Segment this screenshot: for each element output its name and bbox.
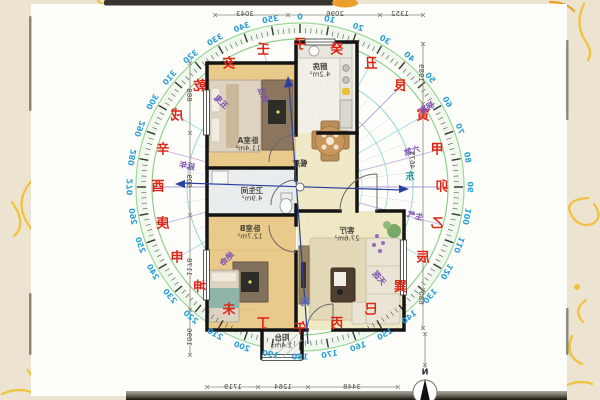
- mountain-label: 巽: [394, 280, 407, 295]
- room-label: 阳台1.4m²: [271, 332, 292, 350]
- panel-light: [248, 280, 251, 283]
- mountain-label: 未: [222, 301, 237, 317]
- mountain-label: 乾: [193, 78, 206, 94]
- mountain-label: 艮: [393, 79, 407, 94]
- room-label: 餐厅: [292, 158, 308, 168]
- mountain-label: 庚: [156, 215, 169, 231]
- dim-label: 2096: [326, 10, 344, 18]
- mountain-label: 乙: [431, 216, 444, 231]
- plant-leaf: [383, 221, 391, 229]
- mountain-label: 子: [293, 38, 306, 53]
- flower: [381, 241, 385, 245]
- mountain-label: 巳: [364, 302, 377, 317]
- mirrored-fengshui-floorplan-photo: 0102030405060708090100110120130140150160…: [0, 0, 600, 400]
- north-n-label: N: [422, 368, 429, 377]
- mountain-label: 戌: [171, 108, 184, 124]
- blanket: [226, 84, 239, 148]
- toilet: [280, 199, 292, 214]
- room-label: 卧室B12.7m²: [237, 223, 262, 241]
- room-label: 卧室A11.4m²: [235, 135, 260, 153]
- bottom-dark-strip: [126, 391, 567, 400]
- mountain-label: 亥: [222, 56, 235, 72]
- mountain-label: 甲: [431, 143, 444, 158]
- pillow: [211, 118, 220, 142]
- panel-light: [276, 110, 279, 113]
- sink: [309, 46, 319, 56]
- mountain-label: 酉: [151, 180, 164, 195]
- tray: [334, 272, 346, 286]
- south-label: 南: [300, 296, 309, 308]
- mountain-label: 丁: [257, 317, 270, 332]
- compass-center-dot: [296, 183, 304, 191]
- right-edge-smudge: [566, 40, 569, 120]
- mountain-label: 辛: [156, 142, 169, 158]
- mountain-label: 丙: [330, 317, 343, 332]
- dim-label: 1719: [224, 383, 242, 391]
- burner: [343, 77, 349, 83]
- dim-label: 1178: [185, 258, 193, 276]
- room-label: 卫生间4.9m²: [241, 185, 264, 203]
- flower: [372, 243, 376, 247]
- dim-label: 609: [185, 174, 193, 187]
- dim-label: 1096: [185, 328, 193, 346]
- mountain-label: 申: [171, 250, 184, 266]
- dim-label: 3448: [343, 383, 361, 391]
- plate: [326, 137, 334, 145]
- left-edge-smudge: [29, 16, 32, 111]
- dim-label: 1989: [417, 64, 425, 82]
- flower: [378, 249, 382, 253]
- mountain-label: 壬: [257, 41, 270, 57]
- pillow: [211, 272, 237, 282]
- dim-label: 680: [417, 291, 425, 304]
- degree-label: 180: [291, 353, 308, 362]
- plate: [322, 145, 327, 150]
- mountain-label: 午: [293, 321, 306, 337]
- sofa-chaise: [352, 302, 366, 324]
- degree-label: 270: [126, 179, 135, 196]
- plate: [334, 145, 339, 150]
- dim-label: 1264: [274, 383, 292, 391]
- mountain-label: 癸: [329, 41, 344, 57]
- dim-label: 888: [185, 88, 193, 101]
- top-dark-smudge: [104, 0, 334, 6]
- mountain-label: 辰: [415, 251, 429, 266]
- right-edge-smudge: [566, 308, 569, 355]
- mountain-label: 坤: [193, 279, 206, 295]
- mountain-label: 丑: [364, 57, 377, 72]
- room-label: 厨房4.2m²: [309, 61, 330, 79]
- degree-label: 0: [297, 13, 303, 22]
- dim-label: 4675: [408, 151, 416, 169]
- wash-basin: [212, 171, 228, 184]
- east-label: 东: [405, 171, 415, 183]
- left-edge-smudge: [29, 293, 32, 355]
- degree-label: 90: [466, 181, 475, 193]
- doodle-dot: [574, 284, 580, 290]
- mountain-label: 卯: [435, 179, 448, 195]
- fridge: [340, 100, 352, 128]
- flower: [375, 234, 379, 238]
- burner: [343, 65, 349, 71]
- dim-label: 1352: [391, 10, 409, 18]
- dim-label: 3043: [236, 10, 254, 18]
- kettle: [337, 289, 343, 295]
- kitchen-item: [342, 88, 350, 95]
